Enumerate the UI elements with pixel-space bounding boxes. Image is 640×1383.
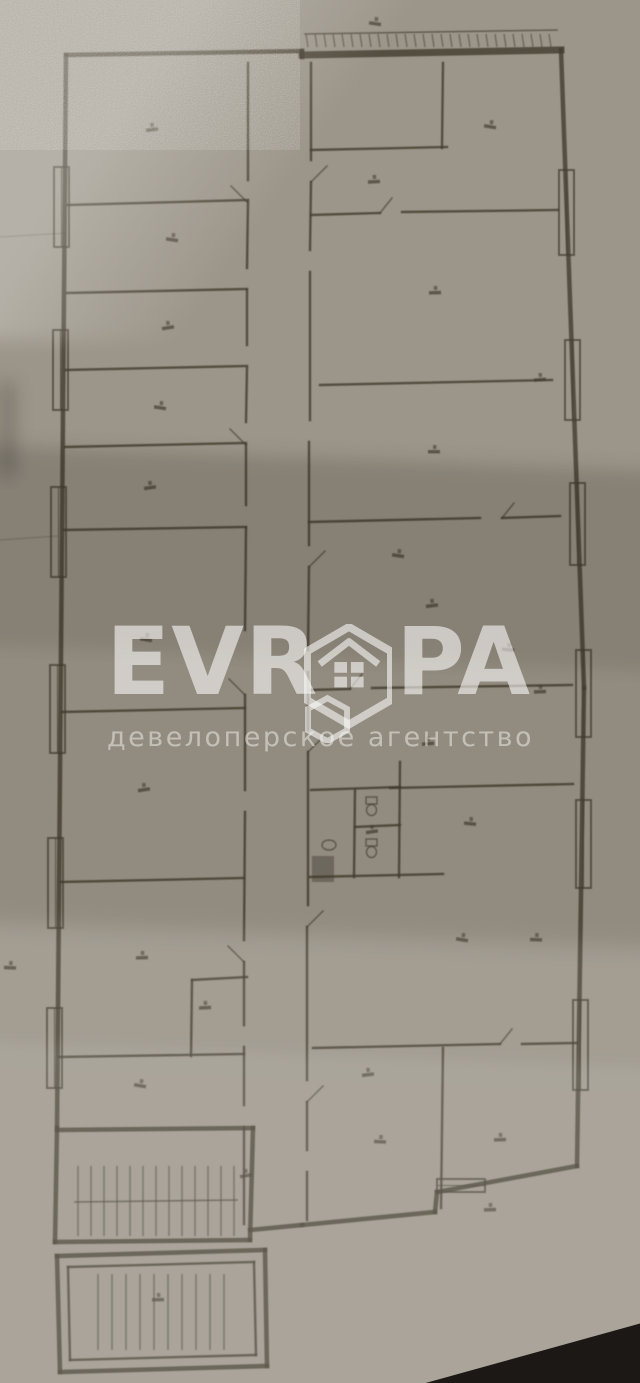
floor-plan-svg — [0, 0, 640, 1383]
floor-plan-photo: EVR PA девелоперское агентство — [0, 0, 640, 1383]
floor-plan-drawing — [0, 16, 591, 1372]
